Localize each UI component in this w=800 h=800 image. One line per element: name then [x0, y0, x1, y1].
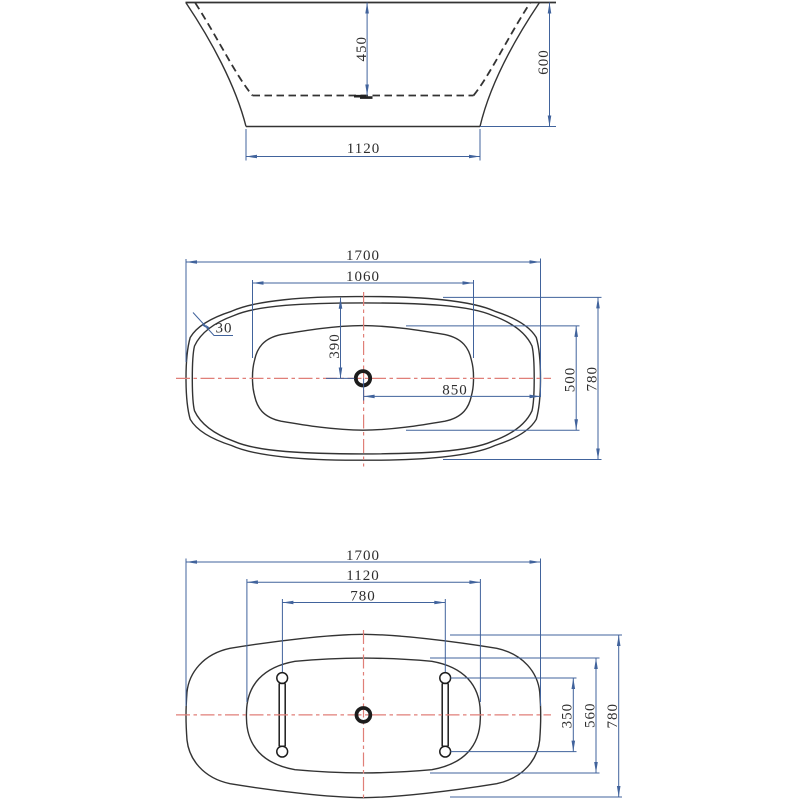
svg-text:1120: 1120	[346, 568, 379, 584]
svg-text:1700: 1700	[346, 248, 380, 264]
svg-text:30: 30	[216, 321, 233, 337]
svg-text:560: 560	[583, 702, 599, 728]
svg-text:1120: 1120	[347, 141, 380, 157]
svg-text:1060: 1060	[346, 269, 380, 285]
svg-text:1700: 1700	[346, 548, 380, 564]
svg-text:780: 780	[585, 366, 601, 392]
svg-text:780: 780	[350, 589, 376, 605]
svg-text:390: 390	[327, 333, 343, 359]
svg-text:600: 600	[536, 49, 552, 75]
svg-text:780: 780	[605, 703, 621, 729]
svg-text:850: 850	[442, 383, 468, 399]
svg-text:350: 350	[560, 703, 576, 729]
svg-text:450: 450	[354, 36, 370, 62]
svg-text:500: 500	[563, 367, 579, 393]
